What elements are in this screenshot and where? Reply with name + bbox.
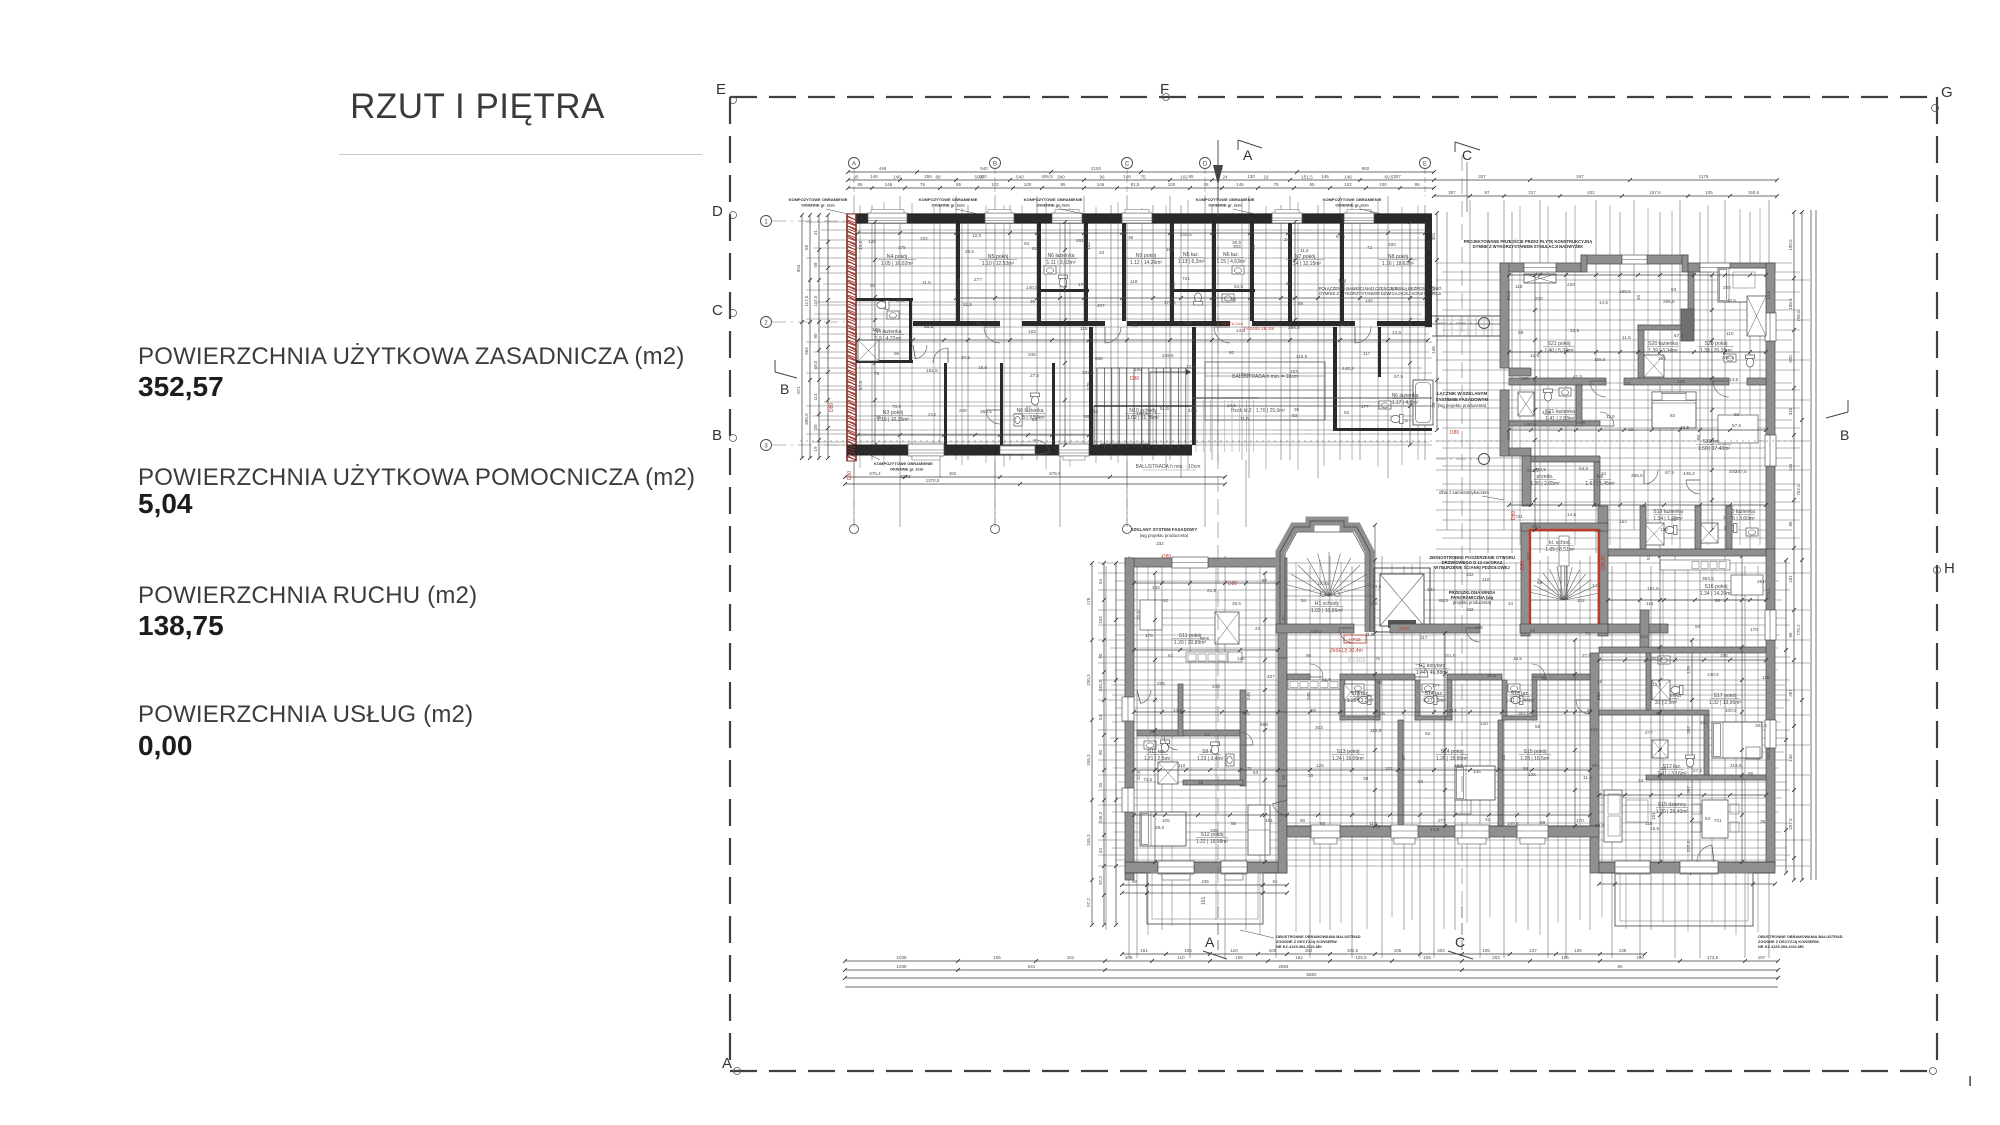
svg-text:29: 29: [1596, 528, 1602, 533]
svg-text:173,5: 173,5: [1164, 300, 1176, 305]
svg-text:302,5: 302,5: [1082, 370, 1094, 375]
svg-text:1.34 | 14,20m²: 1.34 | 14,20m²: [1700, 591, 1732, 597]
svg-text:1.05 | 16,02m²: 1.05 | 16,02m²: [881, 261, 913, 267]
svg-text:105: 105: [1482, 948, 1490, 953]
svg-text:29,5: 29,5: [965, 249, 974, 254]
svg-text:151,5: 151,5: [926, 368, 938, 373]
svg-text:1.40 | 5,34m²: 1.40 | 5,34m²: [1544, 348, 1574, 354]
svg-text:90: 90: [1306, 653, 1312, 658]
svg-text:62: 62: [1418, 779, 1424, 784]
svg-text:448,2: 448,2: [1683, 471, 1695, 476]
svg-text:1.17 | 4,3m²: 1.17 | 4,3m²: [1392, 400, 1419, 406]
svg-text:721: 721: [1515, 514, 1523, 519]
svg-text:N3 pokój: N3 pokój: [883, 410, 903, 416]
svg-text:C: C: [712, 302, 723, 319]
svg-text:1370,5: 1370,5: [926, 478, 940, 483]
svg-text:1.21 | 2,5m²: 1.21 | 2,5m²: [1144, 756, 1171, 762]
svg-text:151,5: 151,5: [1647, 586, 1659, 591]
svg-text:39: 39: [1030, 299, 1036, 304]
svg-text:220: 220: [1184, 320, 1192, 325]
svg-text:345: 345: [1210, 828, 1218, 833]
svg-text:92: 92: [1344, 410, 1350, 415]
svg-text:95: 95: [853, 175, 859, 180]
svg-text:118,5: 118,5: [1370, 728, 1382, 733]
svg-text:S16 pokój: S16 pokój: [1704, 584, 1727, 590]
svg-text:1.24 | 16,09m²: 1.24 | 16,09m²: [1332, 756, 1364, 762]
svg-text:132: 132: [1086, 242, 1091, 250]
svg-text:110: 110: [1726, 331, 1734, 336]
svg-text:175: 175: [1086, 382, 1091, 390]
svg-text:29,5: 29,5: [1426, 240, 1431, 250]
svg-text:I: I: [1968, 1073, 1972, 1090]
svg-text:S19 łazienka: S19 łazienka: [1653, 509, 1683, 515]
svg-text:307: 307: [1448, 190, 1456, 195]
svg-text:80: 80: [1696, 434, 1701, 440]
svg-text:345: 345: [1788, 407, 1793, 415]
svg-text:1.23 | 3,4m²: 1.23 | 3,4m²: [1197, 756, 1224, 762]
svg-text:105: 105: [1394, 948, 1402, 953]
svg-text:57: 57: [1026, 405, 1032, 410]
svg-text:307: 307: [1393, 174, 1401, 179]
svg-text:2x30: 2x30: [1399, 626, 1409, 631]
svg-text:50,5: 50,5: [975, 175, 984, 180]
svg-text:261: 261: [1592, 763, 1600, 768]
svg-text:36,5: 36,5: [1487, 673, 1497, 678]
svg-text:14,5: 14,5: [1372, 584, 1382, 589]
svg-text:688: 688: [1596, 692, 1601, 700]
svg-text:1.50 | 17,40m²: 1.50 | 17,40m²: [1698, 446, 1730, 452]
svg-text:81,5: 81,5: [1131, 182, 1140, 187]
svg-text:1.12 | 14,26m²: 1.12 | 14,26m²: [1130, 260, 1162, 266]
svg-text:38: 38: [1363, 776, 1369, 781]
svg-text:F: F: [1160, 81, 1169, 98]
svg-text:249,5: 249,5: [1162, 353, 1174, 358]
svg-text:H1 korytarz: H1 korytarz: [1419, 663, 1446, 669]
svg-text:340: 340: [1057, 175, 1065, 180]
svg-text:177: 177: [1432, 683, 1440, 688]
svg-text:1.67 | 5,45m²: 1.67 | 5,45m²: [1585, 481, 1615, 487]
svg-text:482: 482: [949, 471, 957, 476]
svg-text:146: 146: [1788, 754, 1793, 762]
svg-text:FA2400 2B 2m: FA2400 2B 2m: [1244, 326, 1275, 331]
svg-text:153: 153: [1619, 519, 1627, 524]
svg-text:1.10 | 12,53m²: 1.10 | 12,53m²: [982, 261, 1014, 267]
svg-text:721: 721: [1714, 818, 1722, 823]
svg-text:247,5: 247,5: [1735, 469, 1747, 474]
svg-text:13,5: 13,5: [1392, 330, 1402, 335]
svg-text:327: 327: [1478, 174, 1486, 179]
svg-text:A: A: [1205, 934, 1215, 950]
svg-text:N4 pokój: N4 pokój: [887, 254, 907, 260]
svg-text:1.05 | 8,51m²: 1.05 | 8,51m²: [1545, 547, 1575, 553]
svg-text:11,5: 11,5: [1365, 632, 1374, 637]
svg-text:24: 24: [1638, 778, 1644, 783]
svg-text:115: 115: [1646, 601, 1654, 606]
svg-text:146: 146: [1321, 174, 1329, 179]
svg-text:92: 92: [1734, 412, 1740, 417]
svg-text:100: 100: [1168, 182, 1176, 187]
svg-text:19: 19: [813, 446, 818, 452]
svg-text:110: 110: [1178, 763, 1186, 768]
svg-text:88: 88: [1298, 301, 1304, 306]
svg-text:14,5: 14,5: [1766, 290, 1771, 300]
svg-text:OBUD.: OBUD.: [1601, 554, 1607, 570]
svg-text:706,5: 706,5: [1796, 310, 1801, 322]
svg-text:62: 62: [1168, 653, 1174, 658]
svg-text:363,5: 363,5: [980, 409, 992, 414]
svg-text:146: 146: [1123, 174, 1131, 179]
svg-text:51,5: 51,5: [1322, 677, 1332, 682]
svg-text:13,5: 13,5: [1729, 377, 1739, 382]
svg-text:361: 361: [1431, 232, 1436, 240]
svg-text:153: 153: [1658, 356, 1666, 361]
svg-text:140,5: 140,5: [1707, 672, 1719, 677]
svg-text:30,5: 30,5: [1537, 467, 1546, 472]
svg-text:75: 75: [1273, 182, 1279, 187]
svg-text:249: 249: [1246, 692, 1251, 700]
svg-text:PŁYTA 2cm: PŁYTA 2cm: [1222, 321, 1243, 326]
svg-text:B: B: [780, 381, 789, 397]
svg-text:27,5: 27,5: [1030, 373, 1040, 378]
svg-text:161: 161: [1201, 896, 1207, 905]
svg-text:120: 120: [1480, 721, 1488, 726]
svg-text:87: 87: [1484, 190, 1490, 195]
svg-text:38: 38: [1294, 407, 1300, 412]
svg-text:100: 100: [1024, 182, 1032, 187]
svg-text:11,5: 11,5: [1369, 821, 1378, 826]
svg-text:95: 95: [1060, 182, 1066, 187]
svg-text:203: 203: [1492, 955, 1500, 960]
svg-text:232: 232: [1467, 572, 1475, 577]
svg-text:140,5: 140,5: [1026, 285, 1038, 290]
svg-text:83: 83: [1670, 413, 1676, 418]
svg-text:146: 146: [1592, 583, 1600, 588]
svg-text:N6 łazienka: N6 łazienka: [1047, 253, 1074, 259]
svg-text:98: 98: [1132, 323, 1138, 328]
svg-text:S11 pokój: S11 pokój: [1179, 633, 1202, 639]
svg-text:24: 24: [1284, 237, 1290, 242]
svg-text:S15 pokój: S15 pokój: [1523, 749, 1546, 755]
svg-text:155,5: 155,5: [1619, 289, 1631, 294]
svg-text:140,5: 140,5: [1507, 821, 1519, 826]
svg-text:153: 153: [1290, 369, 1298, 374]
svg-text:16: 16: [1263, 175, 1269, 180]
svg-text:245,3: 245,3: [1098, 811, 1103, 823]
svg-text:37,5: 37,5: [1136, 770, 1141, 780]
svg-text:40,5: 40,5: [1340, 322, 1350, 327]
svg-text:220: 220: [1567, 282, 1575, 287]
svg-text:303: 303: [1315, 725, 1323, 730]
svg-text:721: 721: [1182, 276, 1190, 281]
svg-text:39: 39: [1281, 774, 1286, 780]
svg-text:175: 175: [898, 245, 906, 250]
svg-text:29: 29: [1286, 281, 1292, 286]
svg-text:51,5: 51,5: [1506, 290, 1511, 300]
svg-text:NR KZ.4125.394.2021.MK: NR KZ.4125.394.2021.MK: [1276, 944, 1322, 949]
svg-text:296,5: 296,5: [1288, 325, 1300, 330]
svg-text:170: 170: [1576, 818, 1584, 823]
svg-text:407: 407: [1267, 674, 1275, 679]
svg-text:73,5: 73,5: [1341, 280, 1346, 290]
svg-text:100,5: 100,5: [1725, 708, 1737, 713]
svg-text:540: 540: [1016, 175, 1024, 180]
svg-text:1.25 | 3,2m²: 1.25 | 3,2m²: [1347, 698, 1374, 704]
svg-text:173,5: 173,5: [1766, 588, 1771, 600]
svg-text:237,5: 237,5: [1686, 840, 1691, 852]
svg-text:35: 35: [876, 415, 882, 420]
svg-text:94: 94: [1024, 241, 1030, 246]
svg-text:214: 214: [928, 412, 936, 417]
svg-text:102: 102: [920, 236, 928, 241]
svg-text:G: G: [1941, 84, 1953, 101]
svg-text:61: 61: [1205, 732, 1211, 737]
svg-text:61: 61: [1281, 614, 1286, 620]
svg-text:185: 185: [1134, 367, 1142, 372]
svg-text:100: 100: [1379, 182, 1387, 187]
svg-text:540: 540: [980, 166, 988, 171]
svg-text:680,5: 680,5: [804, 413, 809, 425]
svg-text:SZKLANY SYSTEM FASADOWY: SZKLANY SYSTEM FASADOWY: [1131, 527, 1198, 532]
svg-text:41,5: 41,5: [1188, 408, 1198, 413]
svg-text:OKIENNE gr. 2cm: OKIENNE gr. 2cm: [1036, 203, 1070, 208]
svg-text:80: 80: [1229, 350, 1235, 355]
svg-text:214: 214: [1640, 634, 1648, 639]
svg-text:115: 115: [1762, 675, 1770, 680]
svg-text:69,5: 69,5: [1385, 175, 1394, 180]
svg-text:118: 118: [1130, 279, 1138, 284]
svg-text:641: 641: [1028, 964, 1036, 969]
svg-text:2594: 2594: [1278, 964, 1289, 969]
svg-text:S21 pokój: S21 pokój: [1547, 341, 1570, 347]
svg-text:96: 96: [1251, 244, 1256, 250]
svg-text:21,5: 21,5: [1207, 588, 1217, 593]
svg-text:S13 łaz.: S13 łaz.: [1351, 691, 1370, 697]
svg-text:dźwi z samozamykaczem: dźwi z samozamykaczem: [1439, 490, 1489, 495]
svg-text:35: 35: [1597, 679, 1603, 684]
svg-text:53: 53: [1093, 409, 1099, 414]
svg-text:152: 152: [1295, 955, 1303, 960]
svg-text:92: 92: [1671, 517, 1677, 522]
svg-text:213: 213: [1431, 286, 1436, 294]
svg-text:102: 102: [1180, 175, 1188, 180]
svg-text:871: 871: [796, 386, 801, 394]
svg-text:249: 249: [959, 408, 967, 413]
svg-text:A: A: [722, 1055, 732, 1072]
svg-text:1.26 | 18,86m²: 1.26 | 18,86m²: [1436, 756, 1468, 762]
svg-text:72: 72: [1367, 245, 1373, 250]
svg-text:HP15: HP15: [1349, 637, 1361, 642]
svg-text:88,5: 88,5: [1439, 598, 1448, 603]
svg-text:150,5: 150,5: [1748, 190, 1760, 195]
svg-text:185: 185: [1521, 376, 1529, 381]
svg-text:1.39 | 3,34m²: 1.39 | 3,34m²: [1648, 348, 1678, 354]
svg-text:95: 95: [857, 182, 863, 187]
svg-text:80: 80: [1617, 964, 1623, 969]
svg-text:105: 105: [1235, 955, 1243, 960]
svg-text:12,5: 12,5: [1570, 328, 1580, 333]
svg-text:11,5: 11,5: [1300, 248, 1309, 253]
svg-text:130: 130: [1247, 174, 1255, 179]
svg-text:102: 102: [1028, 329, 1036, 334]
svg-text:D80: D80: [1130, 376, 1139, 382]
svg-text:29,5: 29,5: [1155, 825, 1165, 830]
svg-text:1.22 | 19,98m²: 1.22 | 19,98m²: [1196, 839, 1228, 845]
svg-text:N7 pokój: N7 pokój: [1295, 254, 1315, 260]
svg-text:58: 58: [1537, 580, 1543, 585]
svg-text:105: 105: [1184, 948, 1192, 953]
svg-text:E: E: [1423, 162, 1427, 168]
svg-text:407: 407: [1097, 303, 1105, 308]
svg-text:232: 232: [1467, 607, 1475, 612]
svg-text:151: 151: [1166, 247, 1174, 252]
svg-text:137: 137: [1529, 948, 1537, 953]
svg-text:190,5: 190,5: [1788, 239, 1793, 251]
svg-text:11,5: 11,5: [1606, 414, 1615, 419]
svg-text:37,5: 37,5: [1200, 636, 1210, 641]
svg-text:54: 54: [1705, 816, 1711, 821]
svg-text:55: 55: [1098, 782, 1103, 788]
svg-text:E: E: [716, 81, 726, 98]
svg-text:29: 29: [1628, 427, 1634, 432]
svg-text:projektu producenta): projektu producenta): [1453, 600, 1492, 605]
svg-text:24: 24: [1625, 381, 1631, 386]
svg-text:N9 pokój: N9 pokój: [1136, 253, 1156, 259]
svg-text:296,5: 296,5: [1631, 473, 1643, 478]
svg-text:C: C: [1462, 147, 1472, 163]
svg-text:105: 105: [1125, 955, 1133, 960]
svg-text:N8 pokój: N8 pokój: [1388, 254, 1408, 260]
svg-text:185: 185: [1720, 653, 1728, 658]
svg-text:170: 170: [1078, 282, 1086, 287]
svg-text:95: 95: [1188, 174, 1194, 179]
svg-text:200: 200: [1388, 242, 1396, 247]
svg-text:54: 54: [1098, 715, 1103, 721]
svg-text:54: 54: [1032, 417, 1038, 422]
svg-text:DYMNE Z WYKORZYSTANIEM SYMULAC: DYMNE Z WYKORZYSTANIEM SYMULACJI NADWYŻE…: [1473, 244, 1584, 249]
svg-text:KOMPOZYTOWE OBRAMIENIE: KOMPOZYTOWE OBRAMIENIE: [874, 461, 933, 466]
svg-text:57,5: 57,5: [858, 380, 863, 390]
svg-text:KOMPOZYTOWE OBRAMIENIE: KOMPOZYTOWE OBRAMIENIE: [789, 197, 848, 202]
svg-text:OKIENNE gr. 2cm: OKIENNE gr. 2cm: [890, 467, 924, 472]
svg-text:D80: D80: [1450, 430, 1459, 436]
svg-text:E0303: E0303: [1348, 658, 1366, 664]
svg-text:KOMPOZYTOWE OBRAMIENIE: KOMPOZYTOWE OBRAMIENIE: [919, 197, 978, 202]
svg-text:88: 88: [1377, 680, 1383, 685]
svg-text:964: 964: [804, 347, 809, 355]
svg-text:367: 367: [1788, 689, 1793, 697]
svg-text:(wg projektu producenta): (wg projektu producenta): [1140, 533, 1189, 538]
svg-text:39: 39: [1198, 780, 1204, 785]
svg-text:14,5: 14,5: [1227, 403, 1236, 408]
svg-text:31: 31: [1485, 817, 1491, 822]
svg-text:125: 125: [1316, 763, 1324, 768]
svg-text:80: 80: [1320, 821, 1326, 826]
svg-text:157,5: 157,5: [1649, 190, 1661, 195]
svg-text:97,2: 97,2: [1086, 898, 1091, 907]
svg-text:102,5: 102,5: [1347, 948, 1359, 953]
svg-text:2: 2: [764, 321, 768, 327]
svg-text:146: 146: [1344, 175, 1352, 180]
svg-text:1.27 | 2m²: 1.27 | 2m²: [1423, 698, 1446, 704]
svg-text:1.13 | 6,3m²: 1.13 | 6,3m²: [1178, 259, 1205, 265]
svg-text:117,5: 117,5: [804, 295, 809, 306]
svg-text:88: 88: [1748, 771, 1754, 776]
svg-text:177: 177: [1361, 404, 1369, 409]
svg-text:1038: 1038: [896, 964, 907, 969]
svg-text:110: 110: [1230, 948, 1238, 953]
svg-text:D90: D90: [847, 471, 853, 480]
svg-text:BALUSTRADA h min. - 10cm: BALUSTRADA h min. - 10cm: [1136, 464, 1201, 470]
svg-text:675,5: 675,5: [1049, 471, 1061, 476]
svg-text:216,5: 216,5: [1730, 763, 1742, 768]
svg-text:200: 200: [1723, 285, 1731, 290]
svg-text:86: 86: [1788, 632, 1793, 638]
svg-text:146: 146: [1370, 601, 1378, 606]
svg-text:1.19 | 10,15m²: 1.19 | 10,15m²: [877, 417, 909, 423]
svg-text:345: 345: [1306, 692, 1311, 700]
svg-text:75: 75: [1375, 656, 1381, 661]
svg-text:173,5: 173,5: [1317, 581, 1329, 586]
svg-text:345,3: 345,3: [1098, 680, 1103, 692]
svg-text:11,5: 11,5: [1240, 416, 1249, 421]
svg-text:249,5: 249,5: [1310, 629, 1322, 634]
svg-text:91: 91: [1272, 879, 1278, 884]
svg-text:100,5: 100,5: [1136, 411, 1148, 416]
svg-text:1038: 1038: [896, 955, 907, 960]
svg-text:317: 317: [1528, 190, 1536, 195]
svg-text:21,5: 21,5: [963, 302, 972, 307]
svg-text:kl. schod.: kl. schod.: [1549, 540, 1571, 546]
svg-text:64,5: 64,5: [1234, 284, 1244, 289]
svg-text:D: D: [712, 203, 723, 220]
svg-text:OKIENNE gr. 2cm: OKIENNE gr. 2cm: [1208, 203, 1242, 208]
svg-text:188,5: 188,5: [1788, 298, 1793, 310]
svg-text:138: 138: [1619, 948, 1627, 953]
svg-text:N6 łaz.: N6 łaz.: [1223, 252, 1239, 258]
svg-text:345,3: 345,3: [1086, 754, 1091, 766]
svg-text:S15 dzienny: S15 dzienny: [1658, 802, 1687, 808]
svg-text:S15 łaz.: S15 łaz.: [1511, 691, 1530, 697]
svg-text:58: 58: [1231, 821, 1237, 826]
svg-text:96: 96: [894, 351, 900, 356]
svg-text:88: 88: [935, 175, 941, 180]
svg-text:95: 95: [1203, 182, 1209, 187]
svg-text:88,5: 88,5: [1595, 823, 1605, 828]
svg-text:173,5: 173,5: [1707, 955, 1719, 960]
svg-text:12,5: 12,5: [972, 233, 982, 238]
svg-text:120: 120: [1237, 656, 1245, 661]
svg-text:178: 178: [1086, 597, 1091, 605]
svg-text:105: 105: [1162, 818, 1170, 823]
svg-text:118,5: 118,5: [1296, 354, 1308, 359]
svg-text:B: B: [712, 427, 722, 444]
svg-text:58: 58: [804, 245, 809, 251]
svg-text:249: 249: [1212, 684, 1220, 689]
svg-text:57,5: 57,5: [1732, 423, 1742, 428]
svg-text:904: 904: [796, 264, 801, 272]
svg-text:S17 pokój: S17 pokój: [1713, 693, 1736, 699]
svg-text:3: 3: [764, 444, 768, 450]
svg-text:114: 114: [813, 393, 818, 401]
svg-text:105: 105: [1561, 955, 1569, 960]
svg-text:320: 320: [1788, 355, 1793, 363]
svg-text:58: 58: [813, 262, 818, 268]
svg-text:97,2: 97,2: [1098, 876, 1103, 885]
svg-text:13,5: 13,5: [1430, 827, 1440, 832]
svg-text:102: 102: [1590, 727, 1598, 732]
svg-text:54: 54: [1530, 628, 1536, 633]
svg-text:11,5: 11,5: [922, 280, 931, 285]
